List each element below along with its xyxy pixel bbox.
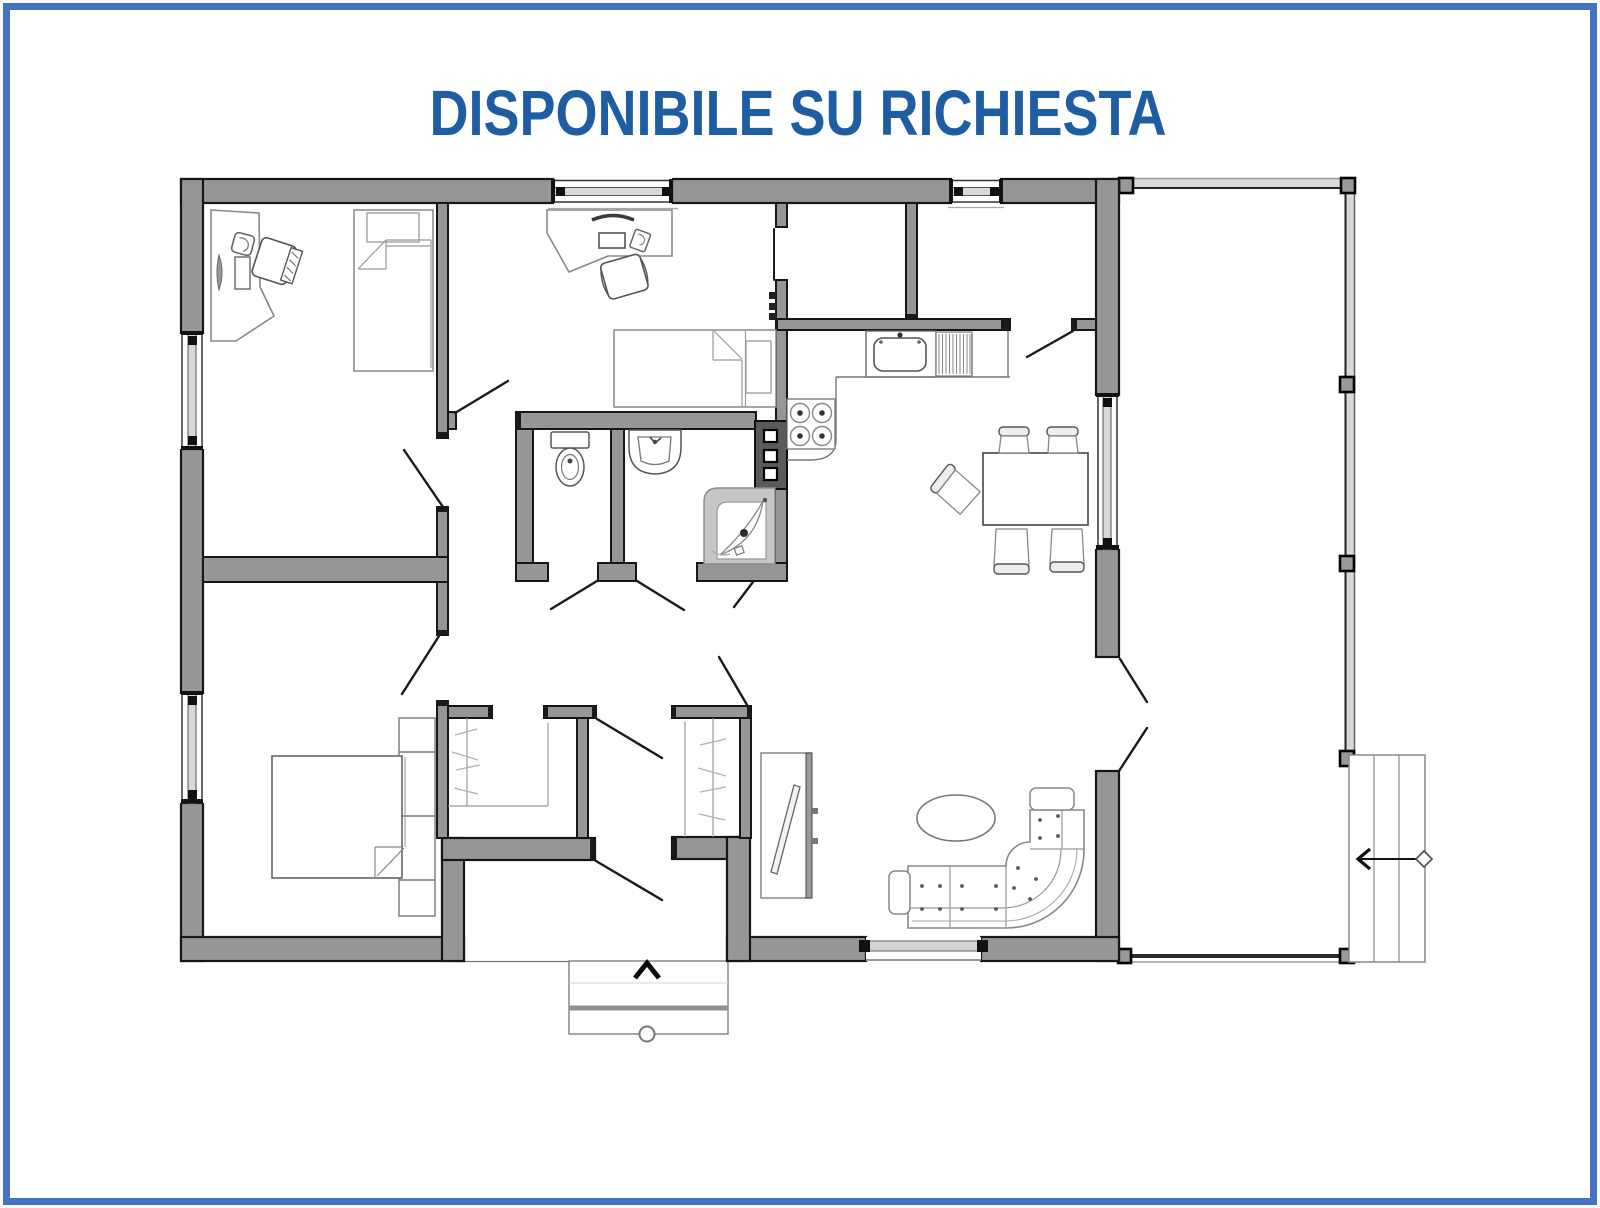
- svg-text:DISPONIBILE SU RICHIESTA: DISPONIBILE SU RICHIESTA: [430, 77, 1167, 149]
